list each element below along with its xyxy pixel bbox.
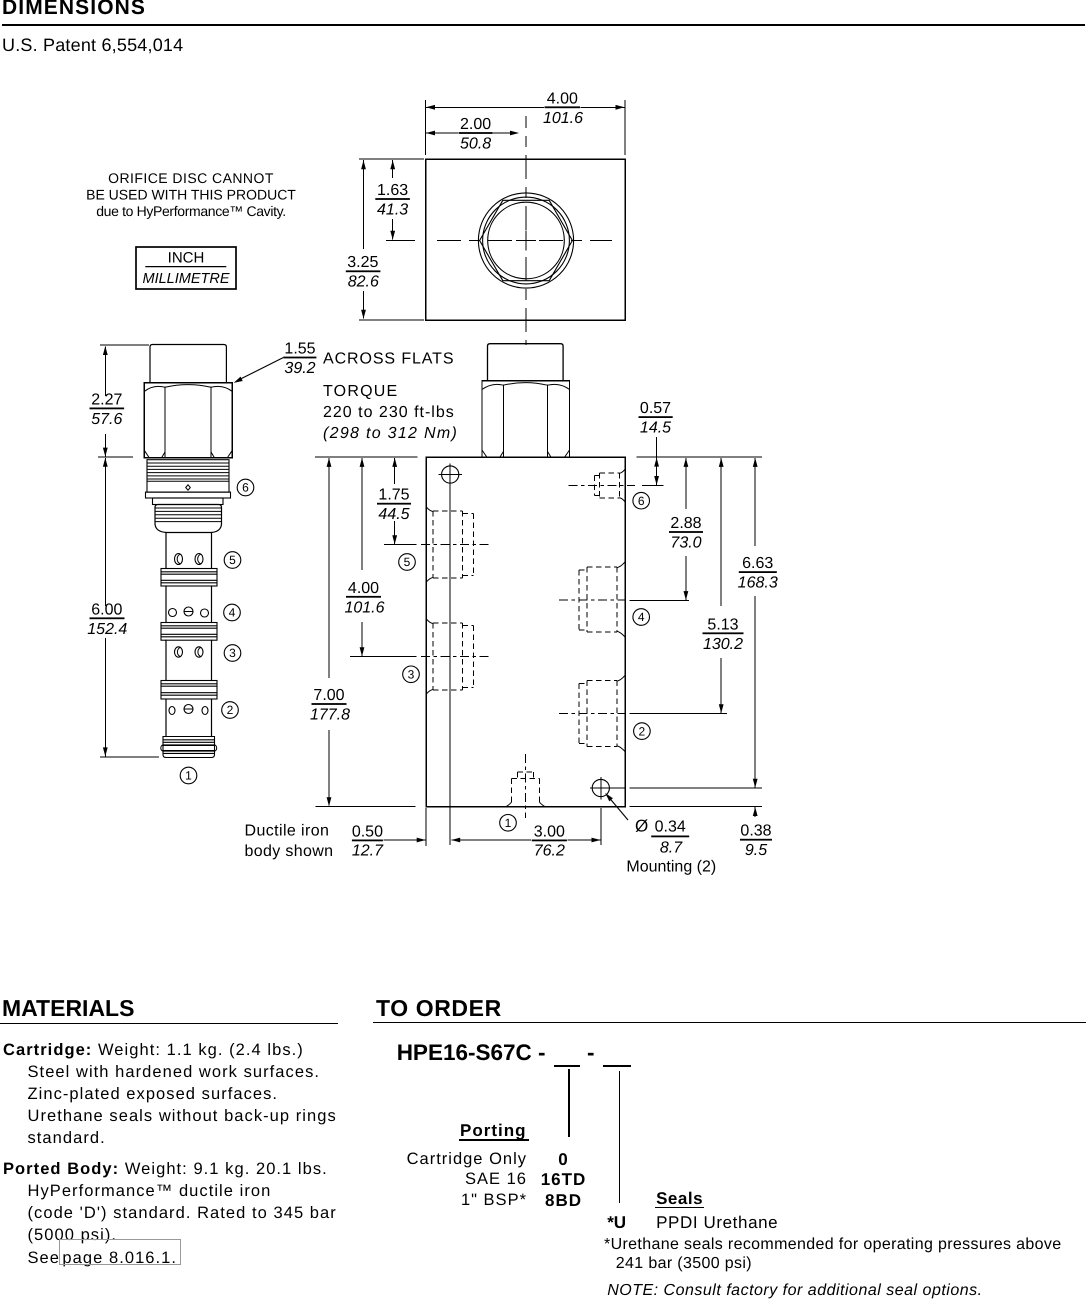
svg-text:ORIFICE DISC CANNOT: ORIFICE DISC CANNOT (108, 170, 274, 186)
svg-text:body shown: body shown (245, 843, 334, 860)
svg-text:0.57: 0.57 (640, 400, 671, 417)
svg-text:2.88: 2.88 (670, 515, 701, 532)
svg-text:6.00: 6.00 (91, 601, 122, 618)
svg-text:5.13: 5.13 (707, 616, 738, 633)
svg-text:57.6: 57.6 (91, 411, 122, 428)
svg-text:2.27: 2.27 (91, 391, 122, 408)
svg-text:3: 3 (408, 668, 415, 682)
svg-text:ACROSS FLATS: ACROSS FLATS (323, 351, 454, 368)
svg-text:4: 4 (229, 606, 236, 620)
svg-text:9.5: 9.5 (745, 842, 767, 859)
svg-text:39.2: 39.2 (284, 360, 315, 377)
svg-text:73.0: 73.0 (670, 535, 701, 552)
svg-text:3.25: 3.25 (347, 254, 378, 271)
svg-text:4.00: 4.00 (348, 580, 379, 597)
svg-text:177.8: 177.8 (310, 707, 350, 724)
svg-text:1.75: 1.75 (378, 487, 409, 504)
svg-text:Ø: Ø (635, 817, 648, 836)
svg-text:6: 6 (242, 481, 249, 495)
svg-text:44.5: 44.5 (378, 506, 409, 523)
svg-text:8.7: 8.7 (660, 840, 683, 857)
svg-text:4.00: 4.00 (547, 90, 578, 107)
svg-text:0.50: 0.50 (352, 824, 383, 841)
svg-text:3.00: 3.00 (534, 824, 565, 841)
svg-text:TORQUE: TORQUE (323, 383, 398, 400)
svg-text:5: 5 (229, 553, 236, 567)
svg-text:2.00: 2.00 (460, 116, 491, 133)
svg-text:50.8: 50.8 (460, 136, 491, 153)
svg-text:6: 6 (638, 494, 645, 508)
svg-text:0.34: 0.34 (655, 819, 686, 836)
svg-text:14.5: 14.5 (640, 420, 671, 437)
svg-text:INCH: INCH (168, 250, 205, 267)
svg-text:2: 2 (639, 724, 646, 738)
svg-text:7.00: 7.00 (313, 687, 344, 704)
svg-text:0.38: 0.38 (740, 823, 771, 840)
svg-text:4: 4 (638, 610, 645, 624)
svg-text:(298 to 312 Nm): (298 to 312 Nm) (323, 425, 458, 442)
svg-text:101.6: 101.6 (543, 110, 583, 127)
svg-text:76.2: 76.2 (534, 843, 565, 860)
svg-text:BE USED WITH THIS PRODUCT: BE USED WITH THIS PRODUCT (86, 187, 296, 203)
svg-text:168.3: 168.3 (738, 575, 778, 592)
svg-text:130.2: 130.2 (703, 636, 743, 653)
svg-text:2: 2 (227, 703, 234, 717)
svg-text:101.6: 101.6 (344, 599, 384, 616)
svg-text:1: 1 (185, 769, 192, 783)
svg-text:1.63: 1.63 (377, 182, 408, 199)
svg-text:MILLIMETRE: MILLIMETRE (142, 271, 229, 287)
svg-text:Ductile iron: Ductile iron (245, 823, 330, 840)
svg-text:1.55: 1.55 (284, 341, 315, 358)
svg-text:12.7: 12.7 (352, 843, 384, 860)
svg-text:220 to 230 ft-lbs: 220 to 230 ft-lbs (323, 404, 455, 421)
svg-text:Mounting (2): Mounting (2) (626, 859, 716, 876)
svg-text:41.3: 41.3 (377, 201, 408, 218)
svg-text:6.63: 6.63 (742, 555, 773, 572)
svg-text:152.4: 152.4 (87, 621, 127, 638)
svg-text:due to HyPerformance™ Cavity.: due to HyPerformance™ Cavity. (96, 203, 286, 219)
svg-text:5: 5 (404, 555, 411, 569)
svg-text:1: 1 (505, 816, 512, 830)
svg-text:3: 3 (229, 646, 236, 660)
svg-text:82.6: 82.6 (348, 274, 379, 291)
